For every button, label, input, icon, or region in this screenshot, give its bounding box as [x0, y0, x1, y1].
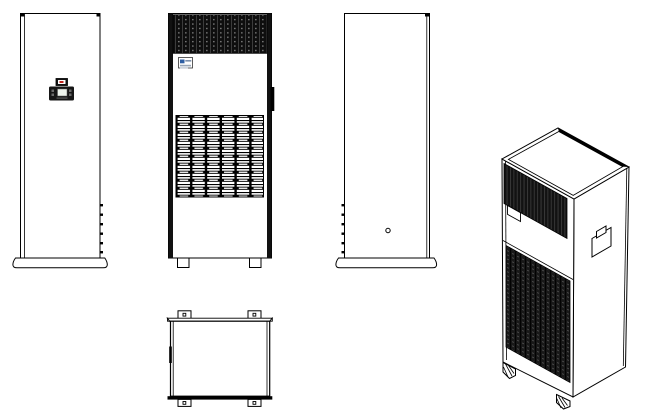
cabinet-outline: [21, 14, 101, 259]
corner-mark: [21, 14, 25, 17]
corner-mark: [425, 14, 429, 17]
door-handle[interactable]: [271, 87, 275, 111]
controller-button[interactable]: [52, 94, 55, 97]
base-plinth: [336, 258, 437, 268]
brand-label-text-line: [185, 60, 191, 62]
status-indicator-light: [60, 81, 64, 83]
brand-label-text-line: [180, 67, 188, 68]
brand-logo-icon: [180, 60, 185, 64]
technical-drawing: [0, 0, 653, 419]
technical-drawing-canvas: [0, 0, 653, 419]
foot: [250, 258, 262, 268]
bracket-hole: [253, 402, 256, 405]
base-plinth: [13, 258, 107, 268]
hinge-mark: [169, 347, 172, 364]
top-view: [167, 311, 273, 407]
right-face: [573, 167, 629, 397]
controller-button[interactable]: [52, 90, 55, 93]
controller-button[interactable]: [69, 90, 72, 93]
bracket-hole: [183, 402, 186, 405]
controller-label-strip: [57, 98, 68, 99]
brand-label: [179, 58, 193, 69]
lcd-display[interactable]: [58, 89, 68, 96]
side-view-a: [13, 14, 107, 268]
bracket-hole: [253, 313, 256, 316]
front-view: [169, 14, 275, 268]
leveling-feet: [178, 258, 262, 268]
louver-grille: [176, 116, 264, 198]
left-frame-rail: [169, 14, 174, 259]
caster-foot: [557, 395, 571, 410]
mounting-brackets: [178, 399, 261, 406]
isometric-view: [502, 128, 629, 409]
controller-button[interactable]: [69, 94, 72, 97]
side-view-b: [336, 14, 437, 268]
right-frame-rail: [267, 14, 272, 259]
corner-mark: [97, 14, 101, 17]
bracket-hole: [183, 313, 186, 316]
mounting-brackets: [178, 311, 261, 319]
screw-hole: [386, 228, 390, 232]
cabinet-outline: [345, 14, 430, 259]
brand-label-text-line: [180, 65, 191, 67]
top-air-grille: [173, 15, 267, 54]
cabinet-outline: [171, 321, 270, 396]
foot: [178, 258, 190, 268]
